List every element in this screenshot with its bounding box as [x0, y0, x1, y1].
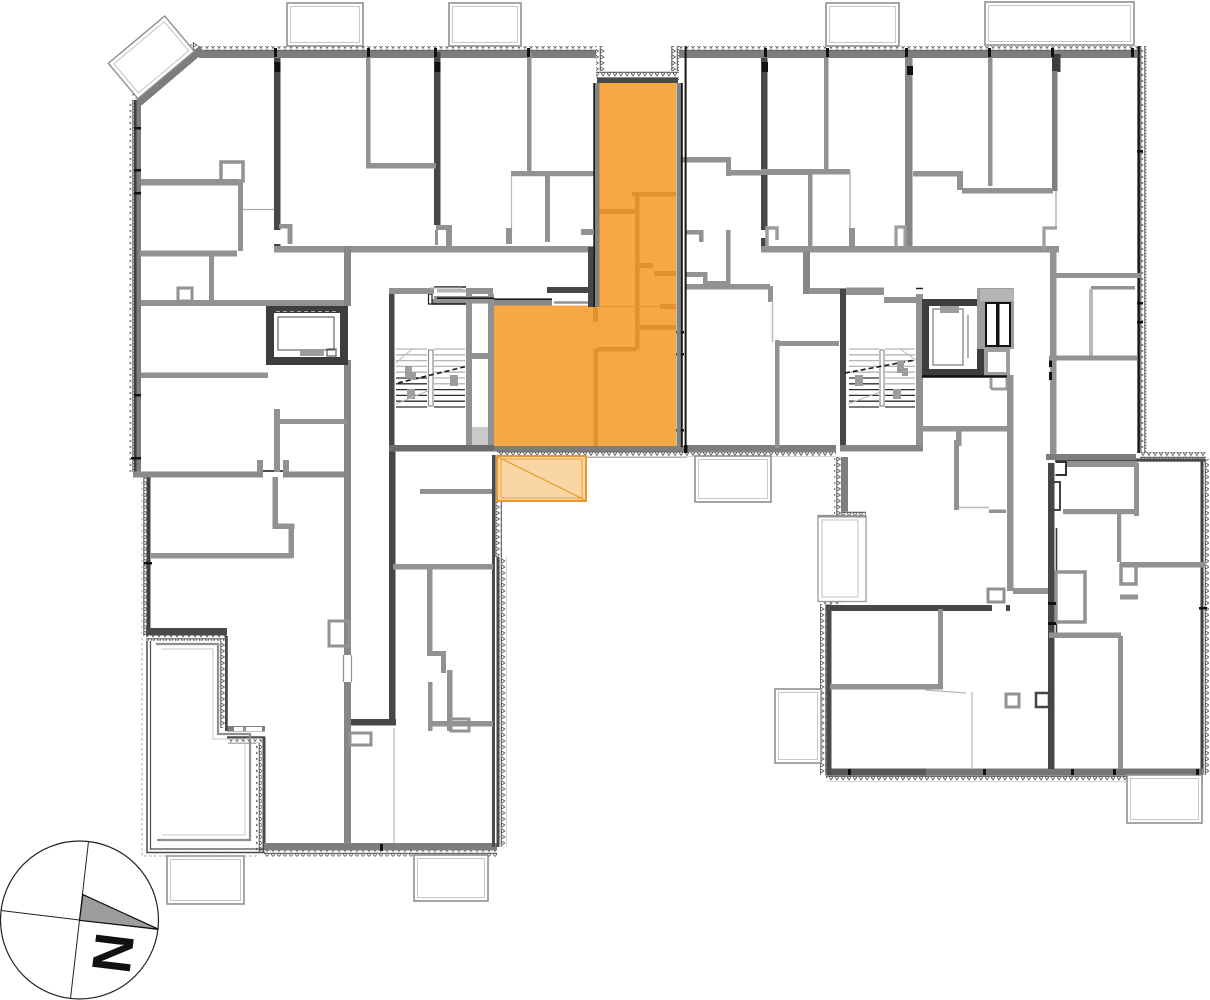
svg-text:N: N: [80, 930, 146, 977]
